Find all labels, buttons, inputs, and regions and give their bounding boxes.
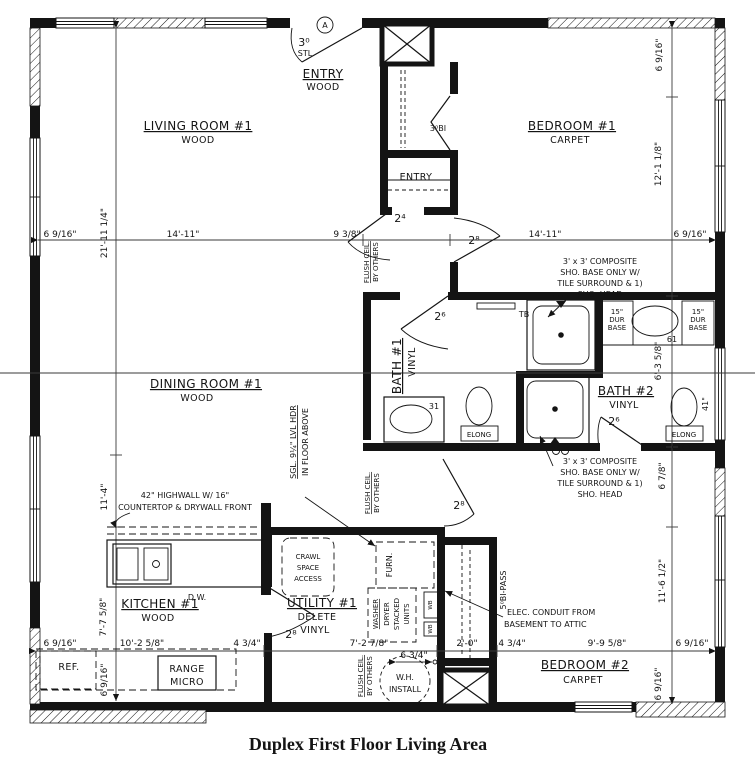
door-label-entry-closet: 2⁴: [394, 212, 406, 225]
room-floor-bath1: VINYL: [407, 347, 418, 377]
chase-box-top: [382, 24, 432, 64]
dim-bath1-vanity: 31: [429, 402, 439, 411]
dim-right-3: 6 7/8": [658, 462, 668, 489]
flush-ceil-3a: FLUSH CEIL.: [357, 655, 365, 697]
door-label-bath2: 2⁶: [608, 415, 620, 428]
dim-right-0: 6 9/16": [655, 39, 665, 72]
dim-right-5: 6 9/16": [654, 668, 664, 701]
door-label-bipass: 5⁰BI-PASS: [499, 571, 508, 610]
room-label-bath1: BATH #1: [390, 338, 404, 394]
durbase2-l1: DUR: [690, 316, 706, 324]
room-label-bedroom2: BEDROOM #2: [541, 658, 629, 672]
door-label-bedroom1: 2⁸: [468, 234, 480, 247]
annotation-labels: FLUSH CEIL. BY OTHERS FLUSH CEIL. BY OTH…: [118, 241, 642, 697]
room-floor-living: WOOD: [181, 135, 214, 146]
door-label-bath1: 2⁶: [434, 310, 446, 323]
composite-shower1-leader: [548, 300, 566, 317]
window-bottom: [575, 702, 632, 712]
room-floor-kitchen: WOOD: [141, 613, 174, 624]
units-label: UNITS: [403, 603, 411, 625]
dim-left-3: 6 9/16": [100, 664, 110, 697]
crawl-l0: CRAWL: [296, 553, 321, 561]
bedroom1-closet-bifold: [431, 96, 450, 150]
dim-bath2-toilet: 41": [701, 397, 710, 411]
composite2-l3: SHO. HEAD: [578, 490, 623, 499]
flush-ceil-3b: BY OTHERS: [366, 656, 374, 696]
room-floor-dining: WOOD: [180, 393, 213, 404]
highwall-leader: [115, 513, 130, 528]
refrigerator-label: REF.: [58, 662, 79, 673]
shower-2: [521, 375, 589, 455]
flush-ceil-2a: FLUSH CEIL.: [364, 472, 372, 514]
composite1-l3: SHO. HEAD: [578, 290, 623, 299]
elec-l0: ELEC. CONDUIT FROM: [507, 608, 595, 617]
dim-bottom-5: 2'-0": [456, 639, 477, 649]
room-floor-entry: WOOD: [306, 82, 339, 93]
floor-plan-drawing: LIVING ROOM #1 WOOD BEDROOM #1 CARPET EN…: [0, 0, 755, 775]
bath2-door: [598, 417, 645, 447]
floor-plan-sheet: LIVING ROOM #1 WOOD BEDROOM #1 CARPET EN…: [0, 0, 755, 775]
dim-bottom-6: 4 3/4": [498, 639, 525, 649]
washer-box-label-1: WB: [428, 600, 434, 609]
dim-top-0: 6 9/16": [44, 230, 77, 240]
leader-lines: [115, 300, 566, 617]
composite1-l2: TILE SURROUND & 1): [556, 279, 642, 288]
washer-box-label-2: WB: [428, 624, 434, 633]
room-floor-bedroom1: CARPET: [550, 135, 590, 146]
washer-label: WASHER: [372, 599, 380, 629]
dim-wh: 6 3/4": [400, 651, 427, 661]
room-floor-bath2: VINYL: [609, 400, 639, 411]
dim-bottom-0: 6 9/16": [44, 639, 77, 649]
dim-bath2-vanity: 61: [667, 335, 677, 344]
stacked-label: STACKED: [393, 598, 401, 630]
dim-top-2: 9 3/8": [333, 230, 360, 240]
durbase1-l0: 15": [611, 308, 623, 316]
room-label-bedroom1: BEDROOM #1: [528, 119, 616, 133]
towel-bar-label: TB: [518, 310, 529, 319]
kitchen-counter-upper: [107, 527, 269, 587]
flush-ceil-1b: BY OTHERS: [372, 242, 380, 282]
dim-bottom-7: 9'-9 5/8": [588, 639, 627, 649]
sheet-title: Duplex First Floor Living Area: [249, 734, 487, 754]
range-label: RANGE: [169, 664, 204, 675]
highwall-l1: COUNTERTOP & DRYWALL FRONT: [118, 503, 252, 512]
window-right-3: [715, 516, 725, 647]
label-entry-closet: ENTRY: [400, 172, 433, 183]
durbase1-l1: DUR: [609, 316, 625, 324]
window-right-2: [715, 348, 725, 440]
dim-bottom-3: 7'-2 7/8": [350, 639, 389, 649]
towel-bar: [477, 303, 515, 309]
dim-right-1: 12'-1 1/8": [654, 142, 664, 186]
dim-top-3: 14'-11": [529, 230, 562, 240]
door-marker-a: A: [322, 21, 328, 30]
highwall-l0: 42" HIGHWALL W/ 16": [141, 491, 229, 500]
dim-bottom-8: 6 9/16": [676, 639, 709, 649]
composite2-l1: SHO. BASE ONLY W/: [560, 468, 640, 477]
room-label-dining: DINING ROOM #1: [150, 377, 262, 391]
wh-l1: INSTALL: [389, 685, 422, 694]
lvl-header-2: IN FLOOR ABOVE: [301, 408, 310, 476]
durbase1-l2: BASE: [608, 324, 626, 332]
room-label-bath2: BATH #2: [598, 384, 654, 398]
door-labels: 3⁰ STL A 2⁴ 2⁸ 2⁶ 2⁶ 2⁸ 2⁸ 3⁰BI 5⁰BI-PAS…: [285, 21, 620, 641]
room-floor-bedroom2: CARPET: [563, 675, 603, 686]
composite2-l0: 3' x 3' COMPOSITE: [563, 457, 637, 466]
window-left-2: [30, 436, 40, 582]
dim-top-1: 14'-11": [167, 230, 200, 240]
dishwasher-label: D.W.: [188, 593, 206, 602]
chase-box-bottom: [441, 670, 491, 706]
bedroom2-door: [443, 459, 474, 526]
dim-left-1: 11'-4": [100, 483, 110, 510]
dim-right-4: 11'-6 1/2": [658, 559, 668, 603]
furnace-label: FURN.: [385, 553, 394, 578]
composite1-l1: SHO. BASE ONLY W/: [560, 268, 640, 277]
composite1-l0: 3' x 3' COMPOSITE: [563, 257, 637, 266]
dim-bottom-1: 10'-2 5/8": [120, 639, 164, 649]
composite2-l2: TILE SURROUND & 1): [556, 479, 642, 488]
crawl-l1: SPACE: [297, 564, 319, 572]
dim-top-4: 6 9/16": [674, 230, 707, 240]
front-door-size: 3⁰: [298, 36, 310, 49]
dim-left-0: 21'-11 1/4": [100, 208, 110, 258]
closet-rod-dashed: [401, 70, 405, 148]
flush-ceil-1a: FLUSH CEIL.: [363, 241, 371, 283]
room-label-entry: ENTRY: [303, 67, 344, 81]
door-label-bedroom2: 2⁸: [453, 499, 465, 512]
window-right-1: [715, 100, 725, 232]
door-label-utility: 2⁸: [285, 628, 297, 641]
window-left-1: [30, 138, 40, 256]
room-label-living: LIVING ROOM #1: [144, 119, 253, 133]
lvl-header-1: SGL. 9¼" LVL HDR: [289, 405, 298, 479]
window-top-1: [56, 18, 114, 28]
flush-ceil-2b: BY OTHERS: [373, 473, 381, 513]
micro-label: MICRO: [170, 677, 204, 688]
elec-l1: BASEMENT TO ATTIC: [504, 620, 587, 629]
room-label-utility: UTILITY #1: [287, 596, 357, 610]
durbase2-l0: 15": [692, 308, 704, 316]
dim-left-2: 7'-7 5/8": [99, 598, 109, 637]
dim-bottom-2: 4 3/4": [233, 639, 260, 649]
wh-l0: W.H.: [396, 673, 414, 682]
room-floor2-utility: VINYL: [300, 625, 330, 636]
dim-right-2: 6'-3 5/8": [654, 342, 664, 381]
window-top-2: [205, 18, 267, 28]
dryer-label: DRYER: [383, 602, 391, 626]
toilet2-label: ELONG: [672, 431, 696, 439]
door-label-bifold: 3⁰BI: [430, 124, 446, 133]
kitchen-sink: [113, 544, 171, 584]
toilet1-label: ELONG: [467, 431, 491, 439]
durbase2-l2: BASE: [689, 324, 707, 332]
crawl-l2: ACCESS: [294, 575, 322, 583]
front-door-material: STL: [298, 49, 313, 58]
room-floor1-utility: DELETE: [298, 612, 337, 623]
